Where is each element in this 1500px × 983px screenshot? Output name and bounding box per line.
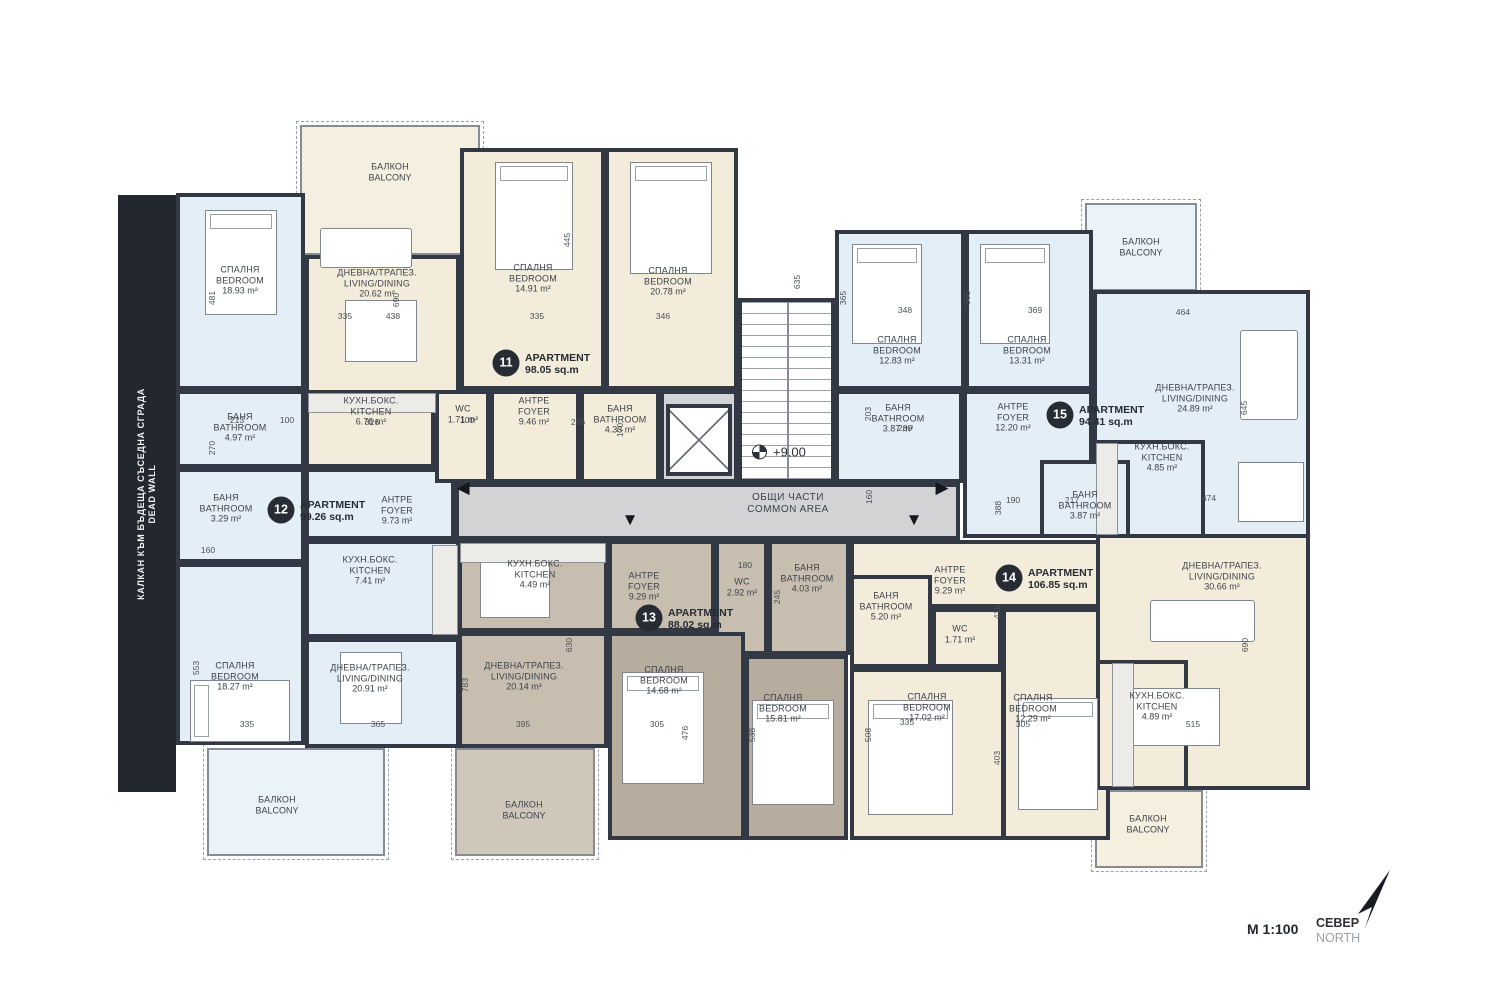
- dimension-label: 630: [564, 638, 574, 652]
- apt13-foyer-label: АНТРЕFOYER9.29 m²: [628, 570, 660, 602]
- apt11-wc-label-line: 1.71 m²: [448, 414, 479, 425]
- apt13-kitchen-label-line: KITCHEN: [507, 569, 562, 580]
- dimension-label: 553: [191, 661, 201, 675]
- elevation-mark: +9.00: [752, 445, 806, 460]
- apt11-bathroom-label-line: BATHROOM: [594, 414, 647, 425]
- apt11-bedroom-1-label: СПАЛНЯBEDROOM14.91 m²: [509, 262, 557, 294]
- balcony-apt13-label-line: БАЛКОН: [502, 800, 545, 811]
- apt11-bedroom-2-label: СПАЛНЯBEDROOM20.78 m²: [644, 265, 692, 297]
- apt15-bathroom-2-label-line: БАНЯ: [1059, 489, 1112, 500]
- apartment-word: APARTMENT: [1028, 567, 1093, 579]
- dimension-label: 474: [1202, 493, 1216, 503]
- bed-pillow: [985, 248, 1045, 263]
- apt15-bedroom-1-label-line: 12.83 m²: [873, 355, 921, 366]
- dimension-label: 160: [864, 490, 874, 504]
- apt13-bedroom-2-label: СПАЛНЯBEDROOM15.81 m²: [759, 692, 807, 724]
- apt14-bedroom-2-label-line: СПАЛНЯ: [1009, 692, 1057, 703]
- apt11-foyer-label-line: FOYER: [518, 406, 550, 417]
- balcony-apt13-label-line: BALCONY: [502, 810, 545, 821]
- apt15-foyer-label: АНТРЕFOYER12.20 m²: [995, 401, 1031, 433]
- apt14-wc-label-line: 1.71 m²: [945, 634, 976, 645]
- apt13-bedroom-1-label-line: СПАЛНЯ: [640, 664, 688, 675]
- dimension-label: 515: [1186, 719, 1200, 729]
- furniture-counter: [432, 545, 458, 635]
- apartment-label-11: APARTMENT98.05 sq.m: [525, 352, 590, 376]
- apt12-bathroom-2-label-line: BATHROOM: [200, 503, 253, 514]
- apt14-living-label-line: 30.66 m²: [1182, 581, 1261, 592]
- apt13-living-label-line: LIVING/DINING: [484, 671, 563, 682]
- apt14-bedroom-2-label-line: 12.29 m²: [1009, 713, 1057, 724]
- apt15-bedroom-2-label-line: 13.31 m²: [1003, 355, 1051, 366]
- apartment-badge-13: 13: [636, 605, 663, 632]
- apt11-kitchen-label-line: 6.76 m²: [343, 416, 398, 427]
- apt15-bathroom-2-label-line: 3.87 m²: [1059, 510, 1112, 521]
- dimension-label: 335: [530, 311, 544, 321]
- dimension-label: 464: [1176, 307, 1190, 317]
- apt15-living-label: ДНЕВНА/ТРАПЕЗ.LIVING/DINING24.89 m²: [1155, 382, 1234, 414]
- dead-wall-label-en: DEAD WALL: [147, 204, 158, 784]
- apt11-bedroom-2-label-line: 20.78 m²: [644, 286, 692, 297]
- dimension-label: 305: [650, 719, 664, 729]
- bed-pillow: [194, 685, 209, 737]
- apartment-area: 106.85 sq.m: [1028, 579, 1093, 591]
- apt13-living-label-line: ДНЕВНА/ТРАПЕЗ.: [484, 660, 563, 671]
- apt15-foyer-label-line: FOYER: [995, 412, 1031, 423]
- apt15-foyer-label-line: 12.20 m²: [995, 422, 1031, 433]
- apartment-area: 99.26 sq.m: [300, 511, 365, 523]
- furniture-bed: [852, 244, 922, 344]
- apartment-label-12: APARTMENT99.26 sq.m: [300, 499, 365, 523]
- apt15-bathroom-2-label: БАНЯBATHROOM3.87 m²: [1059, 489, 1112, 521]
- apt13-kitchen-label-line: 4.49 m²: [507, 579, 562, 590]
- apartment-label-15: APARTMENT94.41 sq.m: [1079, 404, 1144, 428]
- apt15-bathroom-1-label: БАНЯBATHROOM3.87 m²: [872, 402, 925, 434]
- dead-wall: КАЛКАН КЪМ БЪДЕЩА СЪСЕДНА СГРАДА DEAD WA…: [118, 195, 176, 792]
- apt11-kitchen-label-line: КУХН.БОКС.: [343, 395, 398, 406]
- apt14-kitchen-label-line: KITCHEN: [1129, 701, 1184, 712]
- apt14-kitchen-label-line: 4.89 m²: [1129, 711, 1184, 722]
- apt12-bedroom-1-label-line: BEDROOM: [216, 275, 264, 286]
- apt15-bathroom-2-label-line: BATHROOM: [1059, 500, 1112, 511]
- apt14-bedroom-2-label: СПАЛНЯBEDROOM12.29 m²: [1009, 692, 1057, 724]
- apt14-living-label-line: LIVING/DINING: [1182, 571, 1261, 582]
- apt15-bedroom-1-label: СПАЛНЯBEDROOM12.83 m²: [873, 334, 921, 366]
- apt13-foyer-label-line: 9.29 m²: [628, 591, 660, 602]
- furniture-table: [1238, 462, 1304, 522]
- balcony-apt11-label: БАЛКОНBALCONY: [368, 162, 411, 183]
- apt12-kitchen-label-line: 7.41 m²: [342, 575, 397, 586]
- balcony-apt15-label-line: БАЛКОН: [1119, 237, 1162, 248]
- apt13-living-label-line: 20.14 m²: [484, 681, 563, 692]
- apt15-bedroom-2-label-line: BEDROOM: [1003, 345, 1051, 356]
- dimension-label: 365: [371, 719, 385, 729]
- direction-arrow-icon: ▼: [906, 510, 923, 530]
- apt14-kitchen-label: КУХН.БОКС.KITCHEN4.89 m²: [1129, 690, 1184, 722]
- apt12-living-label: ДНЕВНА/ТРАПЕЗ.LIVING/DINING20.91 m²: [330, 662, 409, 694]
- apartment-word: APARTMENT: [300, 499, 365, 511]
- dimension-label: 538: [747, 728, 757, 742]
- balcony-apt14-label-line: BALCONY: [1126, 824, 1169, 835]
- apt14-wc-label-line: WC: [945, 624, 976, 635]
- bed-pillow: [500, 166, 568, 181]
- apartment-badge-11: 11: [493, 350, 520, 377]
- bed-pillow: [857, 248, 917, 263]
- apt15-living-label-line: ДНЕВНА/ТРАПЕЗ.: [1155, 382, 1234, 393]
- apt12-bathroom-2-label-line: БАНЯ: [200, 492, 253, 503]
- furniture-bed: [495, 162, 573, 270]
- apt13-wc-label-line: 2.92 m²: [727, 587, 758, 598]
- dead-wall-label: КАЛКАН КЪМ БЪДЕЩА СЪСЕДНА СГРАДА DEAD WA…: [136, 204, 158, 784]
- floor-plan: КАЛКАН КЪМ БЪДЕЩА СЪСЕДНА СГРАДА DEAD WA…: [0, 0, 1500, 983]
- apt12-bedroom-1-label: СПАЛНЯBEDROOM18.93 m²: [216, 264, 264, 296]
- apt11-bathroom-label-line: 4.33 m²: [594, 424, 647, 435]
- apt12-bathroom-1-label: БАНЯBATHROOM4.97 m²: [214, 411, 267, 443]
- dimension-label: 388: [993, 501, 1003, 515]
- dimension-label: 783: [460, 678, 470, 692]
- apt15-kitchen-label-line: 4.85 m²: [1134, 462, 1189, 473]
- balcony-apt15-label: БАЛКОНBALCONY: [1119, 237, 1162, 258]
- direction-arrow-icon: ▼: [622, 510, 639, 530]
- dimension-label: 508: [863, 728, 873, 742]
- dimension-label: 270: [207, 441, 217, 455]
- dead-wall-label-bg: КАЛКАН КЪМ БЪДЕЩА СЪСЕДНА СГРАДА: [136, 204, 147, 784]
- dimension-label: 160: [201, 545, 215, 555]
- apt13-living-label: ДНЕВНА/ТРАПЕЗ.LIVING/DINING20.14 m²: [484, 660, 563, 692]
- apartment-word: APARTMENT: [1079, 404, 1144, 416]
- apt12-bedroom-2-label-line: 18.27 m²: [211, 681, 259, 692]
- dimension-label: 365: [838, 291, 848, 305]
- apt13-bathroom-label-line: БАНЯ: [781, 562, 834, 573]
- level-symbol-icon: [752, 445, 767, 460]
- furniture-bed: [980, 244, 1050, 344]
- bed-pillow: [635, 166, 707, 181]
- room-corridor: [455, 483, 960, 540]
- apartment-label-14: APARTMENT106.85 sq.m: [1028, 567, 1093, 591]
- direction-arrow-icon: ◀: [456, 478, 469, 498]
- apt14-bathroom-label-line: BATHROOM: [860, 601, 913, 612]
- direction-arrow-icon: ▶: [935, 478, 948, 498]
- apt15-living-label-line: 24.89 m²: [1155, 403, 1234, 414]
- apt13-bedroom-1-label: СПАЛНЯBEDROOM14.68 m²: [640, 664, 688, 696]
- balcony-apt13-label: БАЛКОНBALCONY: [502, 800, 545, 821]
- apt11-bathroom-label-line: БАНЯ: [594, 403, 647, 414]
- apt13-bedroom-2-label-line: СПАЛНЯ: [759, 692, 807, 703]
- balcony-apt11-label-line: БАЛКОН: [368, 162, 411, 173]
- apt14-bathroom-label-line: 5.20 m²: [860, 611, 913, 622]
- apartment-badge-12: 12: [268, 497, 295, 524]
- apartment-area: 94.41 sq.m: [1079, 416, 1144, 428]
- apt14-foyer-label: АНТРЕFOYER9.29 m²: [934, 564, 966, 596]
- apt13-bedroom-1-label-line: 14.68 m²: [640, 685, 688, 696]
- dimension-label: 403: [992, 751, 1002, 765]
- apt15-living-label-line: LIVING/DINING: [1155, 393, 1234, 404]
- apt12-living-label-line: LIVING/DINING: [330, 673, 409, 684]
- apt11-bedroom-1-label-line: BEDROOM: [509, 273, 557, 284]
- apt14-living-label: ДНЕВНА/ТРАПЕЗ.LIVING/DINING30.66 m²: [1182, 560, 1261, 592]
- apt12-foyer-label-line: 9.73 m²: [381, 515, 413, 526]
- dimension-label: 438: [386, 311, 400, 321]
- apt12-bathroom-2-label: БАНЯBATHROOM3.29 m²: [200, 492, 253, 524]
- apt14-bedroom-1-label-line: BEDROOM: [903, 702, 951, 713]
- north-indicator: СЕВЕР NORTH: [1312, 868, 1412, 958]
- apt11-foyer-label: АНТРЕFOYER9.46 m²: [518, 395, 550, 427]
- apt15-bedroom-1-label-line: BEDROOM: [873, 345, 921, 356]
- balcony-apt14-label: БАЛКОНBALCONY: [1126, 814, 1169, 835]
- apt12-bedroom-1-label-line: 18.93 m²: [216, 285, 264, 296]
- apartment-word: APARTMENT: [525, 352, 590, 364]
- apartment-area: 88.02 sq.m: [668, 619, 733, 631]
- apt12-bedroom-1-label-line: СПАЛНЯ: [216, 264, 264, 275]
- elevator: [666, 404, 732, 476]
- dimension-label: 346: [656, 311, 670, 321]
- dimension-label: 296: [571, 417, 585, 427]
- apt12-bedroom-2-label: СПАЛНЯBEDROOM18.27 m²: [211, 660, 259, 692]
- apt14-foyer-label-line: АНТРЕ: [934, 564, 966, 575]
- apt11-kitchen-label: КУХН.БОКС.KITCHEN6.76 m²: [343, 395, 398, 427]
- apt11-bedroom-1-label-line: 14.91 m²: [509, 283, 557, 294]
- apt12-bathroom-1-label-line: БАНЯ: [214, 411, 267, 422]
- balcony-apt14-label-line: БАЛКОН: [1126, 814, 1169, 825]
- apt13-kitchen-label-line: КУХН.БОКС.: [507, 558, 562, 569]
- apt11-foyer-label-line: 9.46 m²: [518, 416, 550, 427]
- apt12-living-label-line: ДНЕВНА/ТРАПЕЗ.: [330, 662, 409, 673]
- dimension-label: 635: [792, 275, 802, 289]
- apt14-kitchen-label-line: КУХН.БОКС.: [1129, 690, 1184, 701]
- balcony-apt12-label: БАЛКОНBALCONY: [255, 795, 298, 816]
- apt13-bathroom-label-line: 4.03 m²: [781, 583, 834, 594]
- bed-pillow: [210, 214, 272, 229]
- dimension-label: 335: [240, 719, 254, 729]
- apt11-living-label-line: LIVING/DINING: [337, 278, 416, 289]
- north-label-bg: СЕВЕР: [1316, 916, 1359, 930]
- apt11-living-label-line: 20.62 m²: [337, 288, 416, 299]
- dimension-label: 365: [962, 291, 972, 305]
- apt15-foyer-label-line: АНТРЕ: [995, 401, 1031, 412]
- furniture-counter: [1112, 663, 1134, 787]
- apt11-bedroom-2-label-line: BEDROOM: [644, 276, 692, 287]
- apt13-bedroom-1-label-line: BEDROOM: [640, 675, 688, 686]
- apt11-foyer-label-line: АНТРЕ: [518, 395, 550, 406]
- apt15-bedroom-2-label: СПАЛНЯBEDROOM13.31 m²: [1003, 334, 1051, 366]
- common-area-label-bg: ОБЩИ ЧАСТИ: [747, 492, 829, 504]
- apt12-foyer-label-line: АНТРЕ: [381, 494, 413, 505]
- apt15-bedroom-2-label-line: СПАЛНЯ: [1003, 334, 1051, 345]
- north-label-en: NORTH: [1316, 931, 1360, 945]
- apt15-bathroom-1-label-line: BATHROOM: [872, 413, 925, 424]
- dimension-label: 476: [680, 726, 690, 740]
- apt14-foyer-label-line: 9.29 m²: [934, 585, 966, 596]
- apt15-bathroom-1-label-line: БАНЯ: [872, 402, 925, 413]
- apt11-kitchen-label-line: KITCHEN: [343, 406, 398, 417]
- apt12-bedroom-2-label-line: СПАЛНЯ: [211, 660, 259, 671]
- balcony-apt12-label-line: БАЛКОН: [255, 795, 298, 806]
- furniture-sofa: [320, 228, 412, 268]
- apt12-foyer-label-line: FOYER: [381, 505, 413, 516]
- apt12-bathroom-1-label-line: BATHROOM: [214, 422, 267, 433]
- balcony-apt15-label-line: BALCONY: [1119, 247, 1162, 258]
- apt14-bathroom-label-line: БАНЯ: [860, 590, 913, 601]
- apt13-bedroom-2-label-line: 15.81 m²: [759, 713, 807, 724]
- balcony-apt11-label-line: BALCONY: [368, 172, 411, 183]
- apt15-bathroom-1-label-line: 3.87 m²: [872, 423, 925, 434]
- dimension-label: 445: [562, 233, 572, 247]
- apt13-foyer-label-line: FOYER: [628, 581, 660, 592]
- apartment-badge-14: 14: [996, 565, 1023, 592]
- apt12-kitchen-label-line: КУХН.БОКС.: [342, 554, 397, 565]
- elevation-text: +9.00: [773, 445, 806, 460]
- apt12-bedroom-2-label-line: BEDROOM: [211, 671, 259, 682]
- apt14-living-label-line: ДНЕВНА/ТРАПЕЗ.: [1182, 560, 1261, 571]
- apartment-area: 98.05 sq.m: [525, 364, 590, 376]
- apt11-wc-label: WC1.71 m²: [448, 404, 479, 425]
- balcony-apt12-label-line: BALCONY: [255, 805, 298, 816]
- apt12-bathroom-1-label-line: 4.97 m²: [214, 432, 267, 443]
- apt15-bedroom-1-label-line: СПАЛНЯ: [873, 334, 921, 345]
- apt14-wc-label: WC1.71 m²: [945, 624, 976, 645]
- apt15-kitchen-label-line: КУХН.БОКС.: [1134, 441, 1189, 452]
- apt12-bathroom-2-label-line: 3.29 m²: [200, 513, 253, 524]
- dimension-label: 100: [280, 415, 294, 425]
- common-area-label-en: COMMON AREA: [747, 504, 829, 516]
- apt11-wc-label-line: WC: [448, 404, 479, 415]
- dimension-label: 395: [516, 719, 530, 729]
- apt11-bedroom-1-label-line: СПАЛНЯ: [509, 262, 557, 273]
- apartment-badge-15: 15: [1047, 402, 1074, 429]
- apt14-bathroom-label: БАНЯBATHROOM5.20 m²: [860, 590, 913, 622]
- apt13-bathroom-label: БАНЯBATHROOM4.03 m²: [781, 562, 834, 594]
- apt12-kitchen-label-line: KITCHEN: [342, 565, 397, 576]
- dimension-label: 348: [898, 305, 912, 315]
- dimension-label: 690: [1240, 638, 1250, 652]
- apt13-bedroom-2-label-line: BEDROOM: [759, 703, 807, 714]
- apt13-kitchen-label: КУХН.БОКС.KITCHEN4.49 m²: [507, 558, 562, 590]
- apt11-living-label-line: ДНЕВНА/ТРАПЕЗ.: [337, 267, 416, 278]
- scale-label: М 1:100: [1247, 921, 1298, 937]
- apt14-foyer-label-line: FOYER: [934, 575, 966, 586]
- apartment-word: APARTMENT: [668, 607, 733, 619]
- apt11-living-label: ДНЕВНА/ТРАПЕЗ.LIVING/DINING20.62 m²: [337, 267, 416, 299]
- apt13-foyer-label-line: АНТРЕ: [628, 570, 660, 581]
- apt13-wc-label-line: WC: [727, 577, 758, 588]
- furniture-table: [345, 300, 417, 362]
- apt14-bedroom-1-label-line: 17.02 m²: [903, 712, 951, 723]
- apt13-wc-label: WC2.92 m²: [727, 577, 758, 598]
- furniture-bed: [630, 162, 712, 274]
- dimension-label: 180: [738, 560, 752, 570]
- apt14-bedroom-2-label-line: BEDROOM: [1009, 703, 1057, 714]
- common-area-label: ОБЩИ ЧАСТИ COMMON AREA: [747, 492, 829, 516]
- apt14-bedroom-1-label: СПАЛНЯBEDROOM17.02 m²: [903, 691, 951, 723]
- apartment-label-13: APARTMENT88.02 sq.m: [668, 607, 733, 631]
- furniture-sofa: [1150, 600, 1255, 642]
- dimension-label: 415: [992, 605, 1002, 619]
- apt11-bedroom-2-label-line: СПАЛНЯ: [644, 265, 692, 276]
- apt11-bathroom-label: БАНЯBATHROOM4.33 m²: [594, 403, 647, 435]
- dimension-label: 190: [1006, 495, 1020, 505]
- apt12-living-label-line: 20.91 m²: [330, 683, 409, 694]
- dimension-label: 335: [338, 311, 352, 321]
- apt13-bathroom-label-line: BATHROOM: [781, 573, 834, 584]
- apt12-foyer-label: АНТРЕFOYER9.73 m²: [381, 494, 413, 526]
- apt14-bedroom-1-label-line: СПАЛНЯ: [903, 691, 951, 702]
- apt15-kitchen-label-line: KITCHEN: [1134, 452, 1189, 463]
- apt12-kitchen-label: КУХН.БОКС.KITCHEN7.41 m²: [342, 554, 397, 586]
- dimension-label: 645: [1239, 401, 1249, 415]
- apt15-kitchen-label: КУХН.БОКС.KITCHEN4.85 m²: [1134, 441, 1189, 473]
- dimension-label: 369: [1028, 305, 1042, 315]
